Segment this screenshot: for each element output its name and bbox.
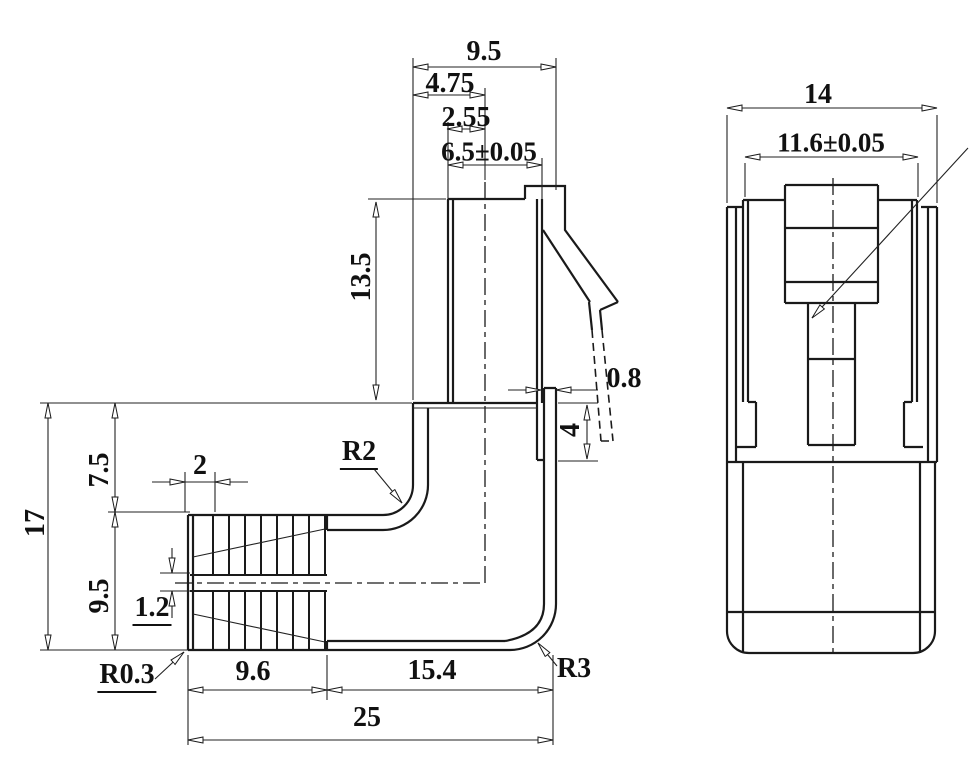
front-view-outline <box>727 185 937 653</box>
dim-latch-slot-depth: 4 <box>557 423 585 437</box>
dim-plug-body-width: 6.5±0.05 <box>441 139 537 166</box>
dim-rib-gap: 1.2 <box>133 594 172 626</box>
dim-overall-length: 25 <box>353 704 381 732</box>
dim-latch-wall: 0.8 <box>607 365 642 393</box>
label-fillet-corner: R3 <box>557 655 591 683</box>
technical-drawing-canvas: 9.5 4.75 2.55 6.5±0.05 13.5 0.8 4 17 7.5… <box>0 0 976 760</box>
dim-plug-center-offset: 4.75 <box>426 70 475 98</box>
outside-arrows <box>152 390 598 618</box>
dim-body-height-upper: 7.5 <box>86 453 114 488</box>
dim-rib-pitch: 2 <box>193 452 207 480</box>
dim-plug-width-total: 9.5 <box>467 38 502 66</box>
dim-body-height-total: 17 <box>22 509 50 537</box>
label-fillet-inner: R2 <box>340 438 378 470</box>
dim-plug-height: 13.5 <box>348 253 376 302</box>
side-view-outline <box>188 186 618 650</box>
dim-front-overall-width: 14 <box>804 81 832 109</box>
dim-boot-length: 9.6 <box>236 658 271 686</box>
dim-body-length: 15.4 <box>408 657 457 685</box>
centerlines <box>175 178 833 658</box>
dim-front-shell-width: 11.6±0.05 <box>777 130 885 157</box>
dim-plug-edge-to-center: 2.55 <box>442 104 491 132</box>
dim-body-height-lower: 9.5 <box>86 579 114 614</box>
label-fillet-boot-tip: R0.3 <box>97 661 156 693</box>
